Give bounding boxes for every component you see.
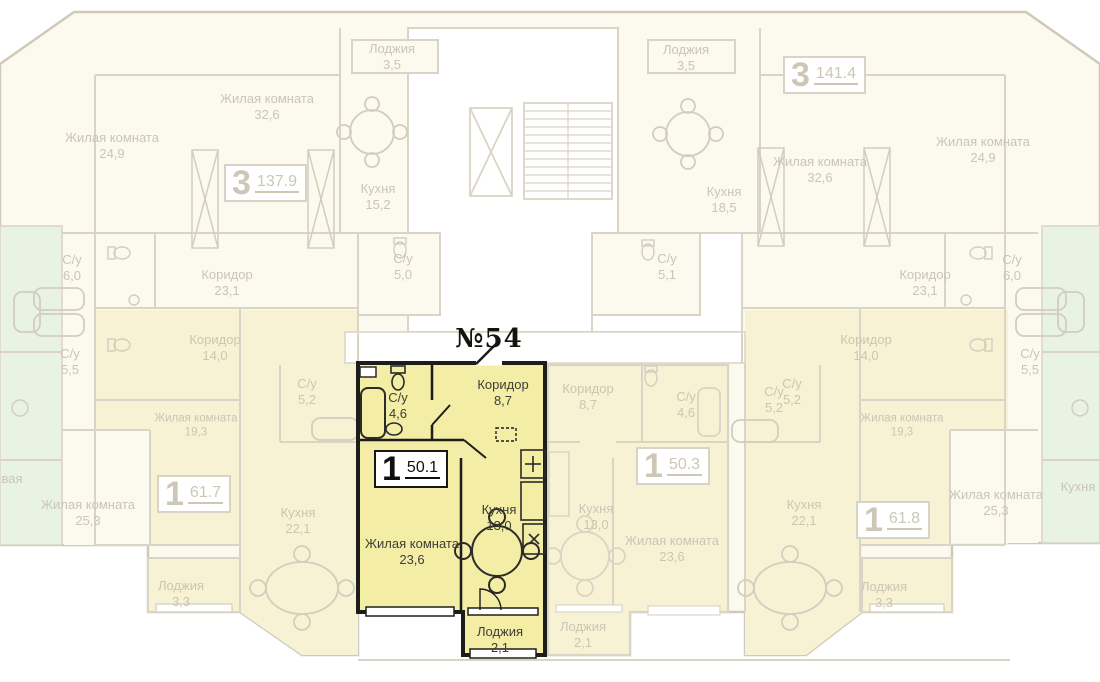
green-apartment-right: [1042, 226, 1100, 543]
room-label: Кухня15,2: [361, 181, 396, 214]
apartment-badge: 3137.9: [224, 164, 307, 202]
room-label: С/у6,0: [62, 252, 82, 285]
window: [366, 607, 454, 616]
room-label: Лоджия3,3: [158, 578, 204, 611]
room-label: С/у5,2: [764, 384, 784, 417]
room-label: Кухня22,1: [281, 505, 316, 538]
room-label: Жилая комната25,3: [41, 497, 135, 530]
room-label: С/у4,6: [676, 389, 696, 422]
room-label: Коридор14,0: [840, 332, 891, 365]
room-label: Жилая комната23,6: [625, 533, 719, 566]
room-label-partial: вая: [1, 471, 22, 487]
apartment-badge: 3141.4: [783, 56, 866, 94]
room-label: Коридор23,1: [899, 267, 950, 300]
wall-niche: [360, 367, 376, 377]
room-label: С/у5,5: [60, 346, 80, 379]
elevator-icon: [470, 108, 512, 196]
common-hall: [345, 332, 745, 363]
apartment-54-badge[interactable]: 150.1: [374, 450, 448, 488]
apt54-room-label: Коридор8,7: [477, 377, 528, 410]
room-label: Лоджия2,1: [560, 619, 606, 652]
floor-plan: №54 3137.9 3141.4 161.7 150.3 161.8 150.…: [0, 0, 1100, 682]
room-label: С/у5,1: [657, 251, 677, 284]
apt54-room-label: Жилая комната23,6: [365, 536, 459, 569]
room-label: Лоджия3,3: [861, 579, 907, 612]
window: [468, 608, 538, 615]
room-label: Коридор14,0: [189, 332, 240, 365]
room-label: Жилая комната24,9: [65, 130, 159, 163]
room-label: Жилая комната25,3: [949, 487, 1043, 520]
apartment-badge: 161.8: [856, 501, 930, 539]
apt54-room-label: С/у4,6: [388, 390, 408, 423]
room-label: Жилая комната32,6: [220, 91, 314, 124]
room-label: С/у6,0: [1002, 252, 1022, 285]
room-label: Коридор8,7: [562, 381, 613, 414]
room-label: С/у5,5: [1020, 346, 1040, 379]
room-label: Жилая комната24,9: [936, 134, 1030, 167]
room-label: С/у5,2: [782, 376, 802, 409]
apartment-number-title: №54: [455, 326, 522, 352]
room-label: Лоджия3,5: [369, 41, 415, 74]
room-label: С/у5,0: [393, 251, 413, 284]
room-label: Лоджия3,5: [663, 42, 709, 75]
apartment-badge: 150.3: [636, 447, 710, 485]
room-label: Жилая комната19,3: [860, 412, 943, 441]
room-label: Кухня13,0: [579, 501, 614, 534]
apt54-room-label: Лоджия2,1: [477, 624, 523, 657]
room-label: Кухня22,1: [787, 497, 822, 530]
room-label: Кухня: [1061, 479, 1096, 495]
apt54-room-label: Кухня13,0: [482, 502, 517, 535]
apartment-badge: 161.7: [157, 475, 231, 513]
room-label: Жилая комната19,3: [154, 412, 237, 441]
room-label: Жилая комната32,6: [773, 154, 867, 187]
room-label: Кухня18,5: [707, 184, 742, 217]
room-label: С/у5,2: [297, 376, 317, 409]
room-label: Коридор23,1: [201, 267, 252, 300]
